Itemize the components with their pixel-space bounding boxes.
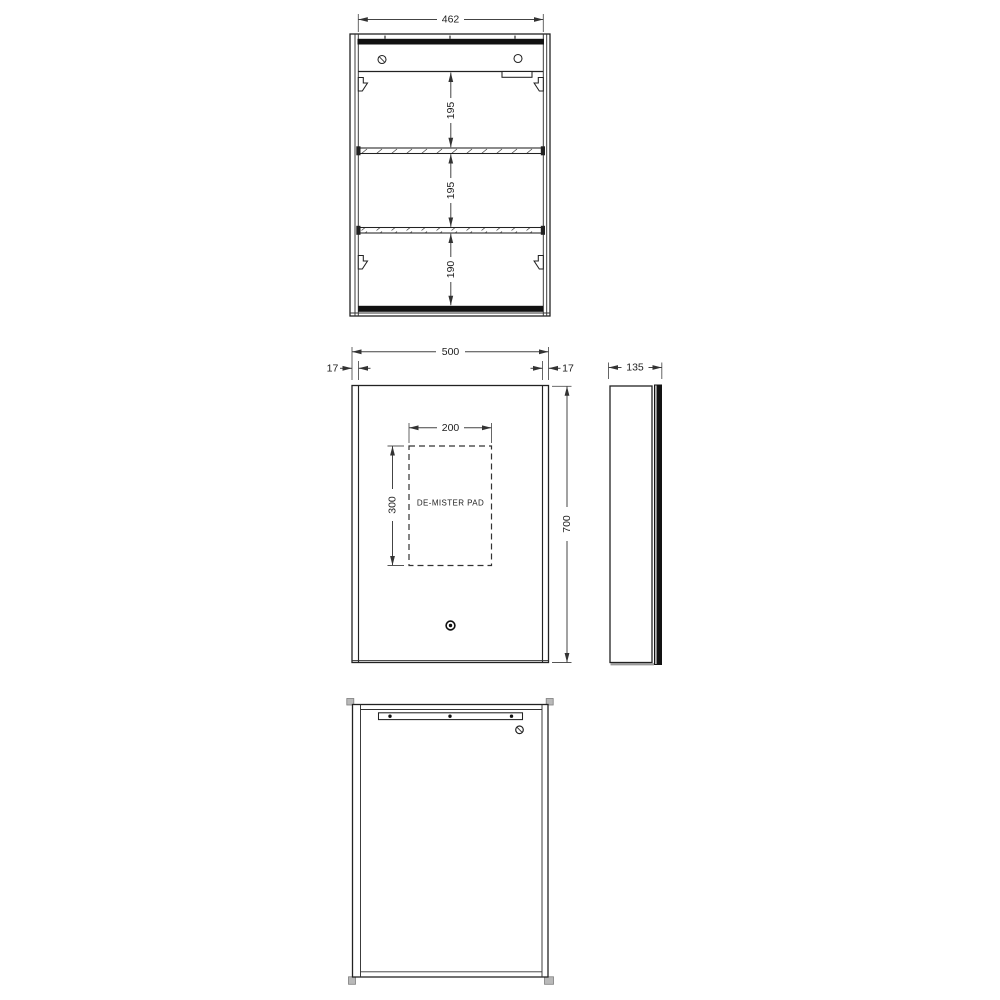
dim-door-offset-left: 17: [327, 361, 371, 380]
glass-shelf: [358, 228, 543, 234]
drawing-sheet: 462 195 195 190 DE-MISTER PAD: [0, 0, 1000, 1000]
rail-screw-dot: [388, 715, 391, 718]
side-body-outline: [610, 386, 652, 663]
dim-label-door-offset-left: 17: [327, 362, 339, 374]
dim-depth: 135: [609, 362, 662, 380]
dim-overall-width: 500: [352, 346, 549, 380]
corner-tab: [349, 977, 356, 985]
technical-drawing: 462 195 195 190 DE-MISTER PAD: [0, 0, 1000, 1000]
dim-label-shelf-space-bottom: 190: [445, 261, 457, 279]
dim-label-shelf-space-top: 195: [445, 102, 457, 120]
corner-tab: [545, 977, 554, 985]
dim-label-shelf-space-middle: 195: [445, 182, 457, 200]
dim-label-overall-height: 700: [561, 515, 573, 533]
dim-label-internal-width: 462: [442, 14, 460, 26]
dim-door-offset-right: 17: [531, 361, 574, 380]
view-side: 135: [609, 362, 663, 666]
shelf-end-cap: [541, 226, 545, 235]
view-internal-front: 462 195 195 190: [350, 14, 550, 317]
view-front: DE-MISTER PAD 500 17 17: [327, 346, 574, 663]
view-back: [347, 699, 554, 985]
dim-label-pad-width: 200: [442, 422, 460, 434]
connector-block: [502, 72, 532, 78]
glass-shelf: [358, 148, 543, 154]
dim-internal-width: 462: [358, 14, 543, 33]
shelf-end-cap: [356, 226, 360, 235]
dim-overall-height: 700: [552, 386, 573, 662]
dim-label-door-offset-right: 17: [562, 362, 574, 374]
rail-screw-dot: [510, 715, 513, 718]
shelf-end-cap: [541, 146, 545, 155]
dim-label-depth: 135: [626, 362, 644, 374]
bottom-light-strip: [358, 306, 543, 312]
screw-icon: [514, 55, 522, 63]
dim-label-pad-height: 300: [387, 496, 399, 514]
demister-pad-label: DE-MISTER PAD: [417, 499, 484, 508]
shelf-end-cap: [356, 146, 360, 155]
back-panel-outline: [353, 705, 549, 978]
rail-screw-dot: [448, 715, 451, 718]
dim-label-overall-width: 500: [442, 346, 460, 358]
top-light-strip: [358, 39, 545, 45]
mirror-door-edge: [654, 385, 662, 666]
touch-sensor-dot: [449, 624, 452, 627]
